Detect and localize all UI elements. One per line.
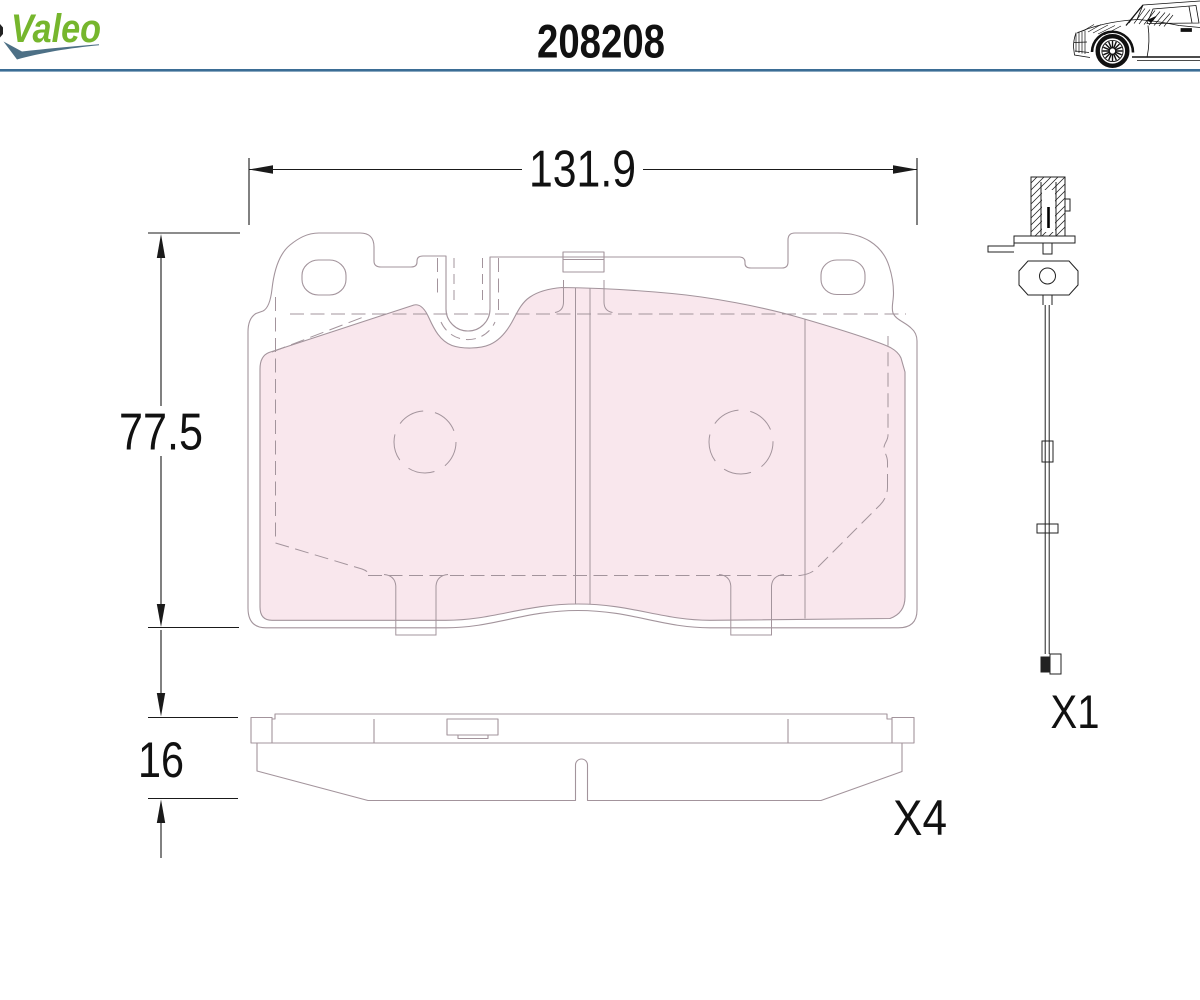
svg-text:X1: X1 (1051, 685, 1100, 738)
svg-text:Valeo: Valeo (11, 7, 101, 51)
svg-text:77.5: 77.5 (119, 404, 203, 462)
svg-text:X4: X4 (893, 790, 947, 846)
svg-text:16: 16 (138, 732, 184, 788)
svg-text:131.9: 131.9 (529, 141, 636, 199)
svg-text:208208: 208208 (537, 15, 665, 68)
